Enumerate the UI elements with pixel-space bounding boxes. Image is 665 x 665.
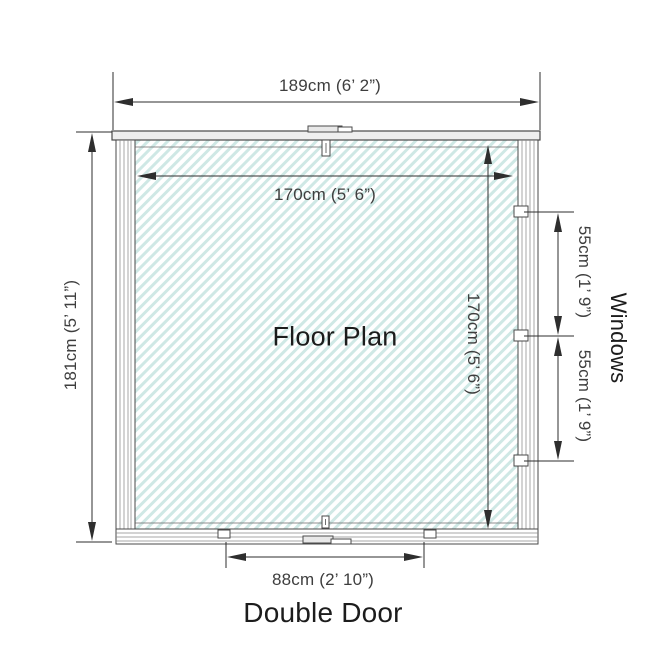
- label-floor-plan: Floor Plan: [272, 322, 397, 353]
- dim-door-width: 88cm (2’ 10”): [272, 570, 374, 590]
- floor-plan-diagram: 189cm (6’ 2”) 181cm (5’ 11”) 170cm (5’ 6…: [0, 0, 665, 665]
- dim-window-bottom: 55cm (1’ 9”): [574, 350, 594, 442]
- dim-window-top: 55cm (1’ 9”): [574, 226, 594, 318]
- dim-internal-depth: 170cm (5’ 6”): [463, 293, 483, 395]
- dim-overall-depth: 181cm (5’ 11”): [61, 280, 81, 391]
- dim-overall-width: 189cm (6’ 2”): [279, 76, 381, 96]
- label-windows: Windows: [605, 293, 631, 384]
- dim-overall-depth-lines: [76, 132, 112, 542]
- dim-internal-width: 170cm (5’ 6”): [274, 185, 376, 205]
- left-wall: [116, 140, 135, 529]
- label-double-door: Double Door: [243, 597, 402, 629]
- dim-door-width-lines: [226, 542, 424, 568]
